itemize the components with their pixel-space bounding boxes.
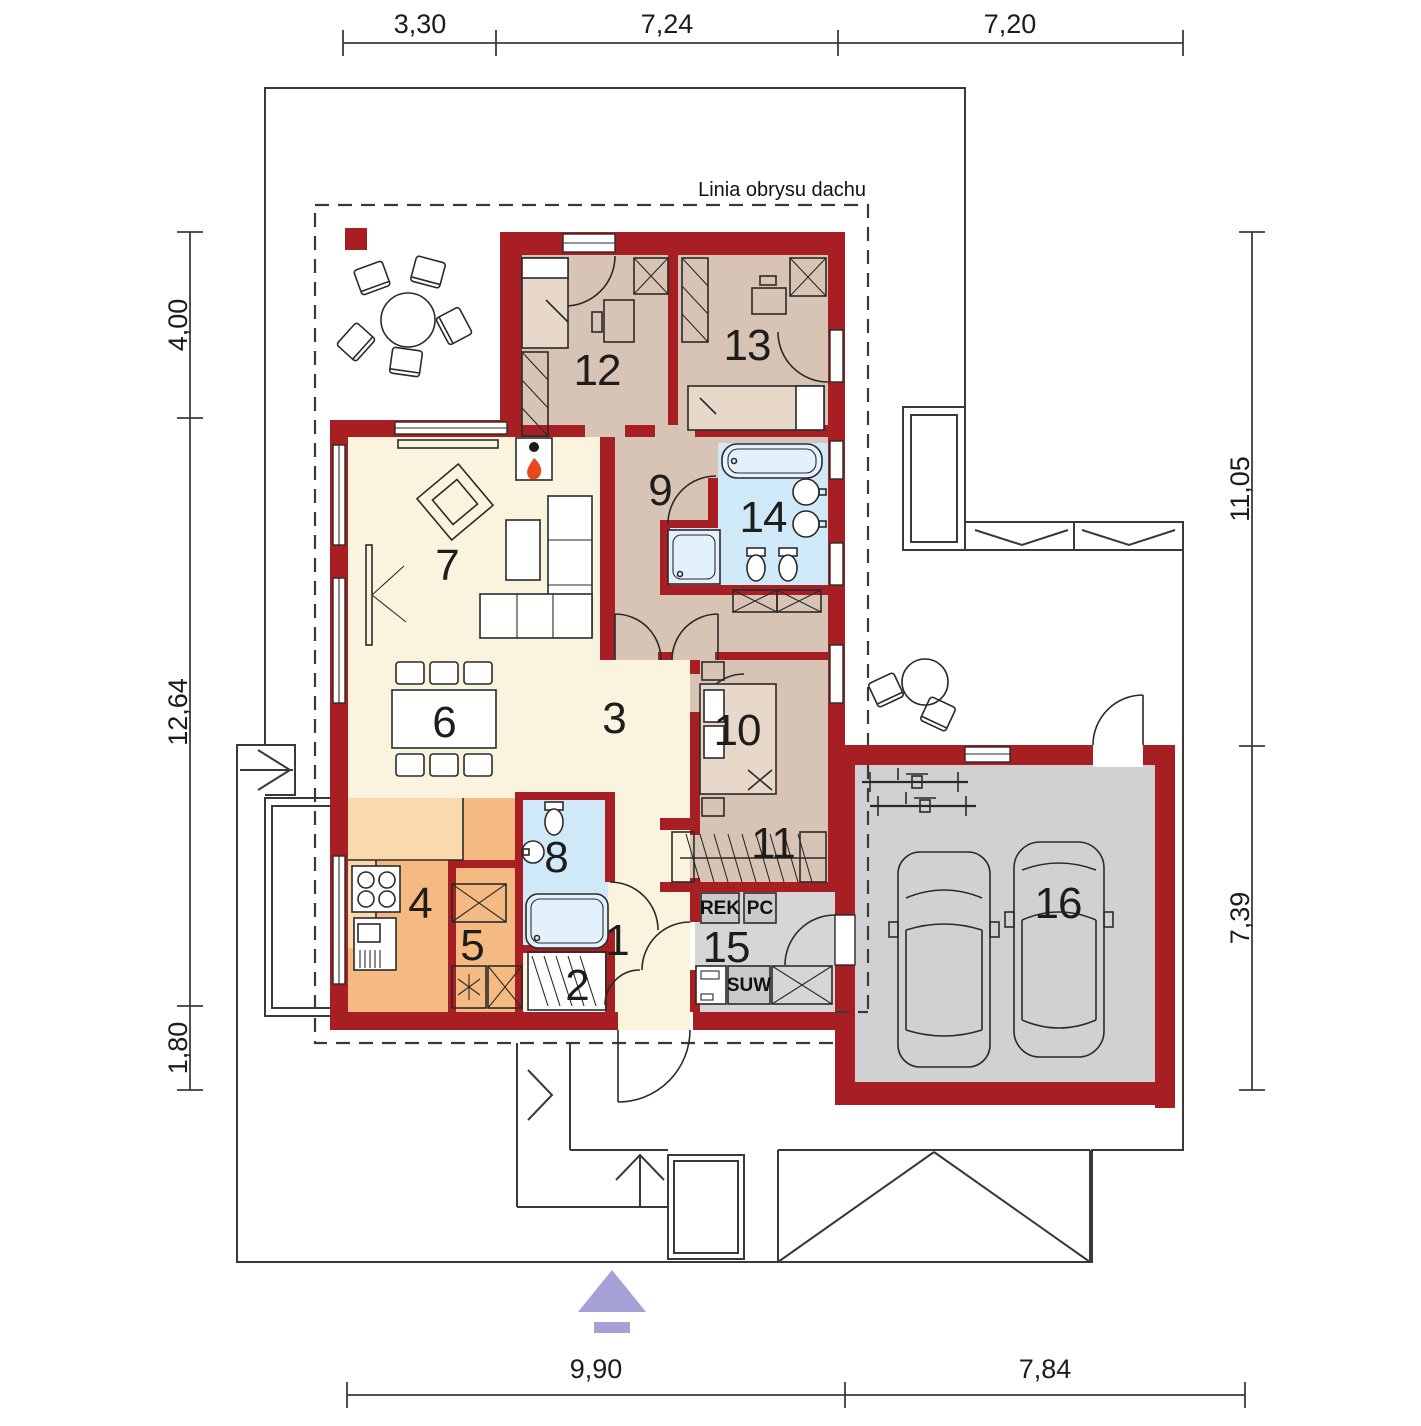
door-arc-entrance — [618, 1030, 690, 1102]
room-5-label: 5 — [460, 921, 483, 970]
coffee-table-icon — [506, 520, 540, 580]
dim-left-3: 1,80 — [163, 1022, 193, 1075]
dimension-left: 4,00 12,64 1,80 — [163, 232, 203, 1090]
room-13-label: 13 — [724, 321, 771, 370]
floor-plan-page: 3,30 7,24 7,20 4,00 12,64 1,80 11,05 7,3… — [0, 0, 1421, 1421]
window-icon — [395, 422, 507, 434]
bed-icon — [522, 258, 568, 348]
shower-icon — [668, 530, 720, 584]
room-7-label: 7 — [435, 541, 458, 590]
room-2-label: 2 — [565, 961, 588, 1010]
stove-icon — [352, 866, 400, 912]
room-1-label: 1 — [605, 916, 628, 965]
room-4-label: 4 — [408, 879, 432, 928]
room-16-label: 16 — [1035, 879, 1082, 928]
path-arrow-icon — [616, 1155, 664, 1207]
bathtub-icon — [526, 894, 608, 948]
dim-right-2: 7,39 — [1225, 892, 1255, 945]
window-icon — [830, 330, 843, 382]
doormat — [668, 1155, 744, 1259]
dim-bottom-2: 7,84 — [1019, 1354, 1072, 1384]
dim-top-1: 3,30 — [394, 9, 447, 39]
window-icon — [830, 441, 843, 479]
window-icon — [333, 445, 345, 545]
toilet-icon — [747, 548, 765, 581]
dimension-top: 3,30 7,24 7,20 — [343, 9, 1183, 56]
room-10-label: 10 — [714, 706, 761, 755]
rek-label: REK — [700, 898, 740, 919]
dimension-bottom: 9,90 7,84 — [347, 1354, 1245, 1408]
dim-left-2: 12,64 — [163, 678, 193, 746]
utility-garage-door-opening — [835, 915, 855, 965]
gate-structure-right — [903, 407, 965, 550]
fireplace-icon — [516, 438, 552, 480]
bed-icon — [688, 386, 824, 430]
suw-label: SUW — [727, 975, 771, 996]
kitchen-sink-icon — [354, 918, 396, 970]
dim-top-2: 7,24 — [641, 9, 694, 39]
room-12-label: 12 — [574, 346, 621, 395]
window-icon — [333, 578, 345, 703]
driveway — [778, 1150, 1090, 1262]
door-arc-garage — [1093, 695, 1143, 745]
sink-icon — [522, 841, 544, 863]
pc-label: PC — [747, 898, 774, 919]
roof-outline-label: Linia obrysu dachu — [698, 179, 866, 201]
garage-door-opening — [1093, 743, 1143, 767]
room-6-label: 6 — [432, 698, 455, 747]
garden-table-icon — [336, 256, 472, 377]
bathtub-icon — [722, 444, 822, 478]
window-icon — [563, 234, 615, 252]
room-3-label: 3 — [602, 694, 625, 743]
fence-band — [965, 522, 1183, 550]
dim-bottom-1: 9,90 — [570, 1354, 623, 1384]
floor-plan-drawing: 3,30 7,24 7,20 4,00 12,64 1,80 11,05 7,3… — [0, 0, 1421, 1421]
entrance-arrow-icon — [578, 1270, 646, 1333]
window-icon — [830, 543, 843, 585]
room-11-label: 11 — [751, 819, 795, 868]
window-icon — [965, 747, 1010, 762]
patio-table-icon — [868, 659, 956, 732]
dim-right-1: 11,05 — [1225, 456, 1255, 522]
dimension-right: 11,05 7,39 — [1225, 232, 1265, 1090]
path-arrow-icon — [528, 1070, 552, 1120]
dim-left-1: 4,00 — [163, 299, 193, 352]
room-8-label: 8 — [544, 833, 567, 882]
gate-left — [240, 745, 295, 795]
bidet-icon — [779, 548, 797, 581]
window-icon — [830, 645, 843, 703]
chimney-icon — [345, 228, 367, 250]
room-14-label: 14 — [740, 493, 787, 542]
window-icon — [333, 856, 345, 984]
room-9-label: 9 — [648, 466, 671, 515]
dim-top-3: 7,20 — [984, 9, 1037, 39]
toilet-icon — [545, 802, 563, 835]
room-15-label: 15 — [703, 923, 750, 972]
